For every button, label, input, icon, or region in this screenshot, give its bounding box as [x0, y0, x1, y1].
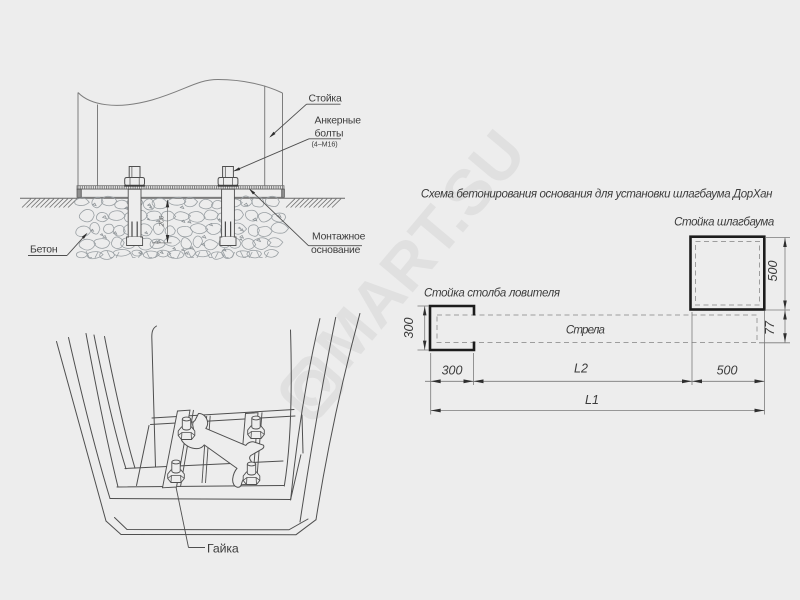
svg-text:200: 200 [159, 215, 166, 227]
svg-text:Анкерные: Анкерные [315, 116, 362, 127]
svg-text:L2: L2 [574, 362, 588, 376]
svg-text:Бетон: Бетон [30, 245, 58, 256]
svg-text:болты: болты [315, 128, 344, 140]
svg-text:500: 500 [766, 261, 780, 282]
svg-text:основание: основание [311, 245, 361, 256]
svg-text:Монтажное: Монтажное [312, 232, 366, 243]
svg-text:L1: L1 [585, 393, 599, 407]
svg-text:Гайка: Гайка [207, 542, 239, 556]
svg-text:77: 77 [763, 320, 777, 335]
svg-text:300: 300 [402, 318, 416, 339]
svg-text:Стойка столба ловителя: Стойка столба ловителя [424, 288, 560, 300]
svg-text:Стойка шлагбаума: Стойка шлагбаума [674, 217, 774, 229]
svg-text:Стрела: Стрела [566, 325, 605, 337]
svg-text:Стойка: Стойка [309, 94, 343, 105]
svg-text:Схема бетонирования основания: Схема бетонирования основания для устано… [421, 189, 773, 201]
svg-text:(4–М16): (4–М16) [312, 140, 338, 149]
svg-text:300: 300 [442, 364, 463, 378]
svg-text:500: 500 [717, 364, 738, 378]
